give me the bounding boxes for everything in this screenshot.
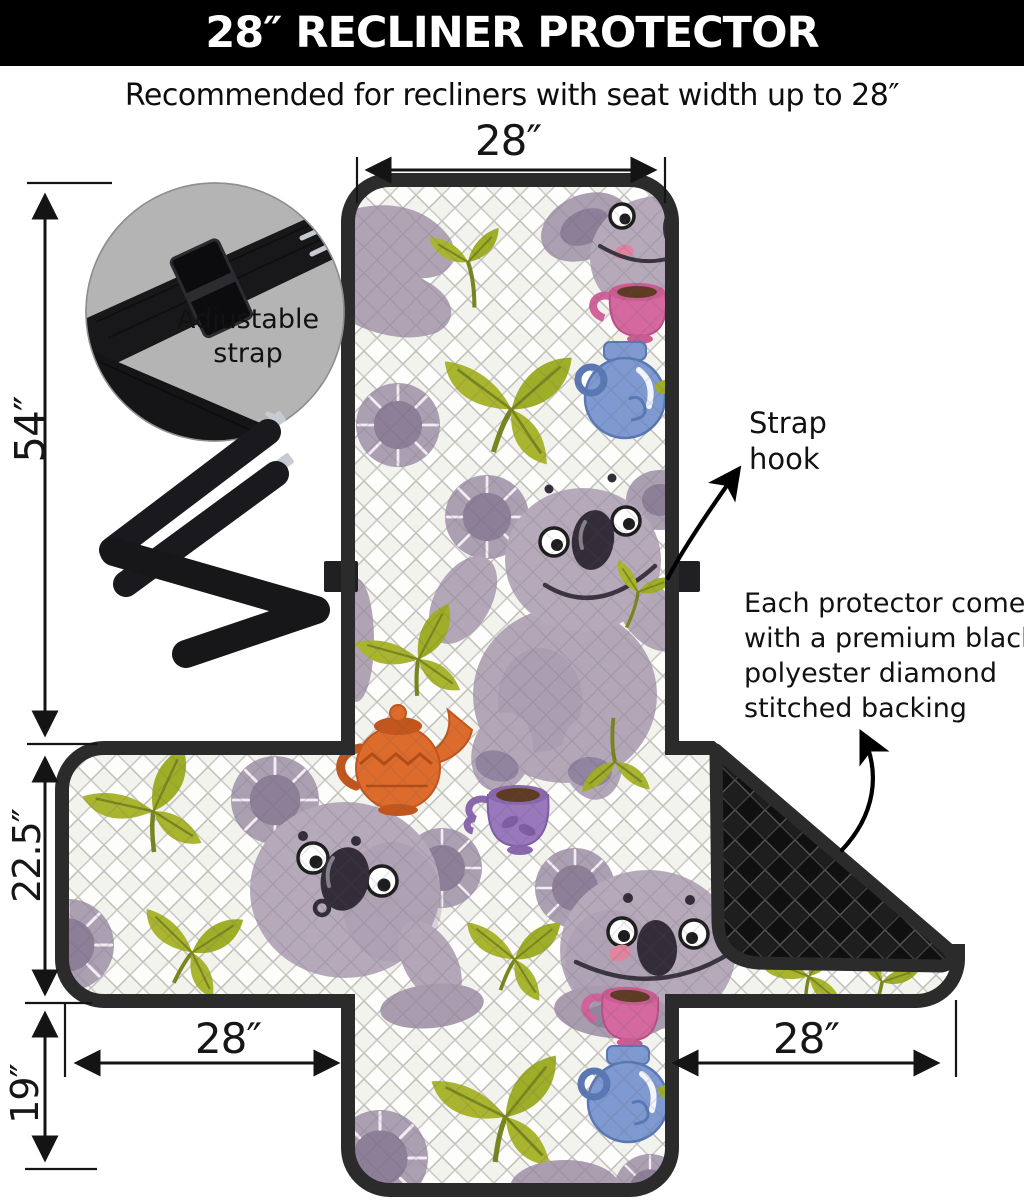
strap-hook-label: Strap hook	[749, 405, 861, 477]
dim-label-total-height: 54″	[6, 345, 55, 515]
dim-label-left-arm-width: 28″	[128, 1014, 328, 1063]
straps-photo	[112, 410, 316, 654]
dim-label-backrest-width: 28″	[408, 116, 608, 165]
dim-label-flap-height: 19″	[3, 994, 47, 1194]
dim-label-right-arm-width: 28″	[706, 1014, 906, 1063]
backing-note: Each protector comes with a premium blac…	[744, 586, 1024, 726]
page-title: 28″ RECLINER PROTECTOR	[205, 8, 818, 58]
dim-label-seat-height: 22.5″	[5, 756, 49, 956]
subtitle: Recommended for recliners with seat widt…	[0, 78, 1024, 113]
title-bar: 28″ RECLINER PROTECTOR	[0, 0, 1024, 66]
adjustable-strap-label: Adjustable strap	[150, 303, 346, 371]
